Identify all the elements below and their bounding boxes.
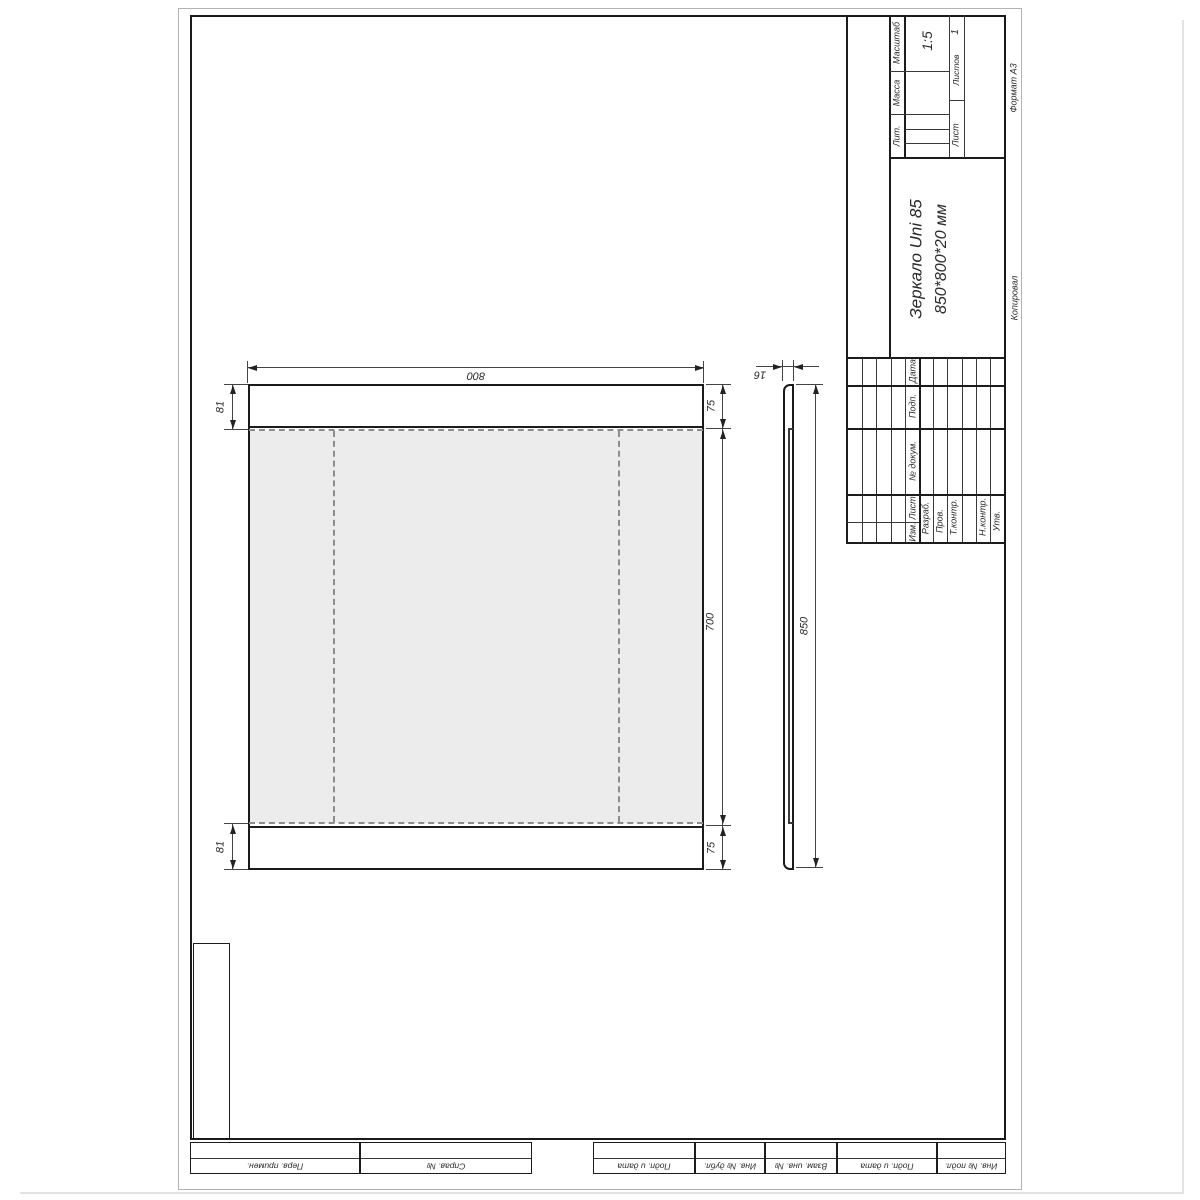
ext-line	[796, 384, 823, 385]
mass-label: Масса	[893, 80, 902, 107]
tb-line	[846, 357, 1006, 359]
scale-value: 1:5	[920, 31, 934, 50]
arrowhead	[813, 385, 819, 394]
dim-text-16: 16	[754, 369, 766, 380]
tb-line	[889, 157, 1006, 159]
arrowhead	[794, 364, 803, 370]
field-divider	[938, 1158, 1005, 1159]
field-divider	[696, 1158, 764, 1159]
scan-shadow-right	[1182, 20, 1184, 1194]
ext-line	[706, 428, 731, 429]
glass-layer-cap-top	[788, 428, 793, 430]
tb-line	[949, 100, 965, 101]
row-tkontr: Т.контр.	[950, 499, 959, 535]
ext-line	[224, 429, 248, 430]
hidden-edge-top	[249, 429, 703, 431]
field-podl-label: Инв. № подл.	[945, 1162, 998, 1171]
dim-line-16	[756, 366, 819, 367]
dim-line-800	[248, 367, 704, 368]
arrowhead	[230, 825, 236, 834]
arrowhead	[773, 364, 782, 370]
dim-text-700: 700	[706, 613, 717, 631]
row-prov: Пров.	[936, 509, 945, 533]
field-podp2-label: Подп. и дата	[860, 1162, 913, 1171]
product-dimensions: 850*800*20 мм	[934, 204, 950, 314]
tb-line	[889, 15, 891, 358]
corner-designation-box	[193, 943, 230, 1140]
dim-text-81-bottom: 81	[216, 841, 227, 853]
row-utv: Утв.	[993, 511, 1002, 531]
field-perv-label: Перв. примен.	[247, 1162, 304, 1171]
product-name: Зеркало Uni 85	[908, 199, 925, 319]
tb-line	[905, 129, 950, 130]
field-dubl-label: Инв. № дубл.	[704, 1162, 756, 1171]
top-band-line	[248, 426, 704, 428]
ext-line	[706, 869, 731, 870]
ext-line	[224, 384, 248, 385]
arrowhead	[230, 860, 236, 869]
hidden-edge-bottom	[249, 822, 703, 824]
tb-line	[964, 15, 965, 158]
dim-text-75-bottom: 75	[707, 842, 718, 854]
ext-line	[782, 360, 783, 381]
bottom-band-line	[248, 826, 704, 828]
col-date: Дата	[909, 359, 918, 383]
tb-line	[847, 494, 1006, 496]
hidden-edge-left	[333, 431, 335, 822]
sheets-value: 1	[951, 29, 961, 35]
row-razrab: Разраб.	[922, 502, 931, 535]
arrowhead	[695, 365, 704, 371]
field-podp1-label: Подп. и дата	[617, 1162, 670, 1171]
scale-label: Масштаб	[893, 22, 902, 64]
col-izm: Изм.	[909, 522, 918, 541]
ext-line	[706, 384, 731, 385]
arrowhead	[720, 430, 726, 439]
arrowhead	[720, 860, 726, 869]
ext-line	[224, 823, 248, 824]
tb-line	[904, 15, 906, 158]
sheet-label: Лист	[952, 123, 961, 146]
field-divider	[766, 1158, 836, 1159]
dim-line-right-stack	[722, 384, 723, 870]
glass-layer-cap-bottom	[788, 822, 793, 824]
arrowhead	[720, 419, 726, 428]
dim-text-850: 850	[800, 617, 811, 635]
lit-label: Лит.	[893, 125, 902, 146]
sheets-label: Листов	[952, 55, 961, 86]
scan-shadow-bottom	[20, 1192, 1184, 1194]
ext-line	[706, 825, 731, 826]
hidden-edge-right	[618, 431, 620, 822]
arrowhead	[230, 385, 236, 394]
arrowhead	[813, 858, 819, 867]
copy-label: Копировал	[1011, 276, 1020, 321]
arrowhead	[720, 385, 726, 394]
dim-line-850	[815, 384, 816, 868]
tb-line	[846, 15, 848, 543]
field-divider	[361, 1158, 531, 1159]
dim-text-75-top: 75	[707, 400, 718, 412]
dim-text-800: 800	[467, 370, 485, 381]
glass-layer-line	[788, 429, 790, 823]
row-nkontr: Н.контр.	[979, 498, 988, 536]
field-vzam-label: Взам. инв. №	[775, 1162, 828, 1171]
format-label: Формат А3	[1010, 63, 1019, 112]
tb-line	[847, 385, 1006, 387]
ext-line	[224, 869, 248, 870]
tb-line	[846, 542, 1006, 544]
arrowhead	[720, 827, 726, 836]
tb-line	[905, 143, 950, 144]
field-divider	[191, 1158, 359, 1159]
field-divider	[838, 1158, 936, 1159]
col-doc: № докум.	[909, 441, 918, 481]
tb-line	[847, 428, 1006, 430]
front-view-outline	[248, 384, 704, 870]
col-sign: Подп.	[909, 394, 918, 418]
tb-line	[890, 71, 950, 72]
tb-line	[890, 114, 950, 115]
col-list: Лист	[909, 496, 918, 519]
field-sprav-label: Справ. №	[427, 1162, 466, 1171]
arrowhead	[230, 420, 236, 429]
ext-line	[796, 867, 823, 868]
arrowhead	[248, 365, 257, 371]
drawing-page: 800 81 81 75 700 75 16	[0, 0, 1200, 1200]
field-divider	[594, 1158, 694, 1159]
arrowhead	[720, 815, 726, 824]
dim-text-81-top: 81	[216, 401, 227, 413]
